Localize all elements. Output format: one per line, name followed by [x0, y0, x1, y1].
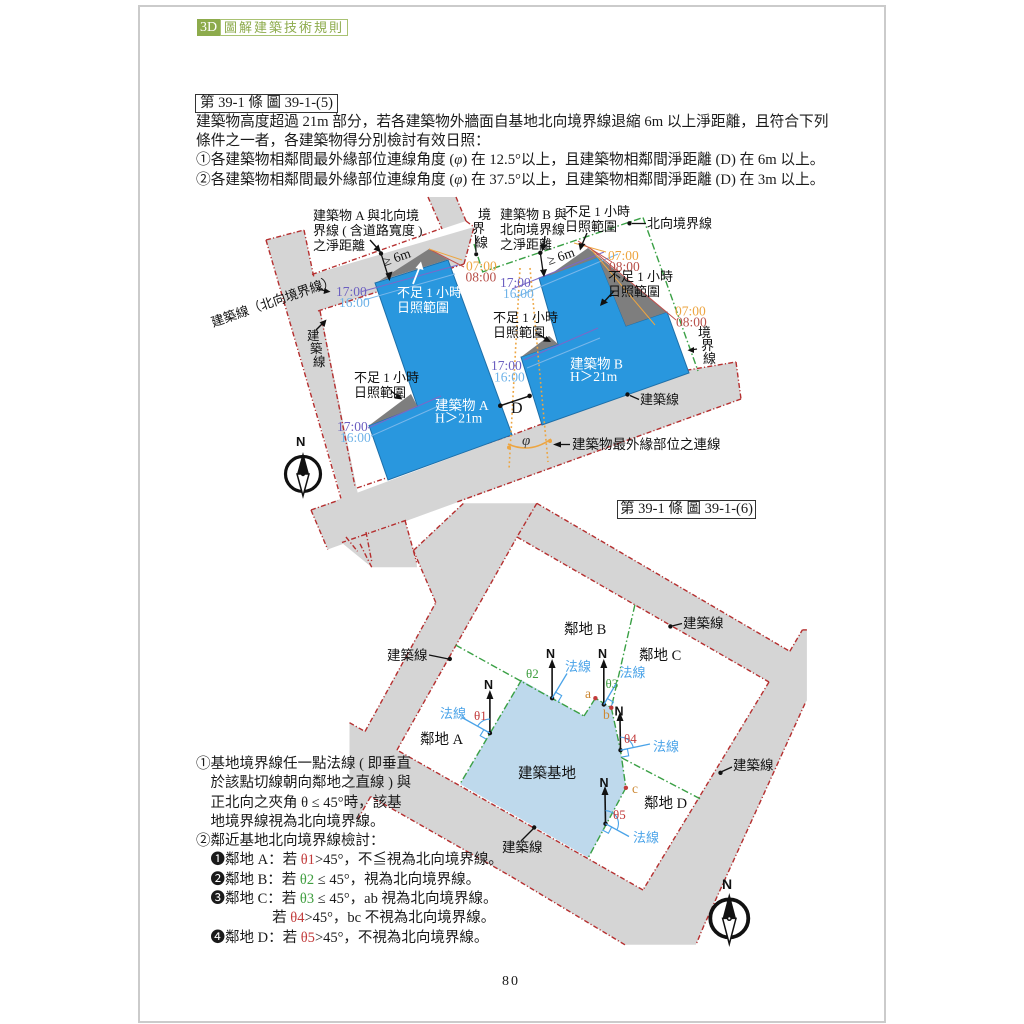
svg-text:θ2: θ2: [526, 666, 539, 681]
svg-text:θ4: θ4: [624, 731, 637, 746]
svg-text:不足 1 小時: 不足 1 小時: [354, 370, 419, 385]
svg-text:線: 線: [475, 235, 488, 250]
svg-text:建築線: 建築線: [387, 648, 428, 663]
svg-text:法線: 法線: [633, 830, 659, 845]
svg-text:N: N: [722, 876, 732, 892]
svg-text:鄰地 A: 鄰地 A: [420, 731, 464, 748]
svg-text:之淨距離: 之淨距離: [313, 238, 365, 253]
svg-text:界線 ( 含道路寬度 ): 界線 ( 含道路寬度 ): [313, 223, 422, 238]
svg-text:日照範圍: 日照範圍: [608, 284, 660, 299]
svg-text:16:00: 16:00: [340, 430, 371, 445]
svg-text:H＞21m: H＞21m: [570, 369, 618, 384]
svg-text:北向境界線: 北向境界線: [647, 216, 712, 231]
svg-text:鄰地 C: 鄰地 C: [639, 647, 681, 664]
svg-text:建: 建: [307, 329, 320, 343]
svg-text:c: c: [632, 781, 638, 796]
svg-text:16:00: 16:00: [503, 286, 534, 301]
svg-text:日照範圍: 日照範圍: [493, 325, 545, 340]
svg-text:法線: 法線: [440, 706, 466, 721]
svg-text:N: N: [615, 705, 624, 719]
svg-text:N: N: [296, 434, 305, 449]
svg-text:θ3: θ3: [606, 676, 619, 691]
svg-text:界: 界: [472, 221, 485, 236]
svg-text:16:00: 16:00: [339, 295, 370, 310]
svg-text:b: b: [603, 707, 610, 722]
svg-text:日照範圍: 日照範圍: [565, 219, 617, 234]
svg-text:H＞21m: H＞21m: [435, 411, 483, 426]
svg-text:建築線: 建築線: [683, 616, 724, 631]
svg-text:N: N: [546, 647, 555, 661]
svg-text:建築基地: 建築基地: [518, 764, 576, 782]
svg-text:θ1: θ1: [474, 708, 487, 723]
svg-text:建築物 A 與北向境: 建築物 A 與北向境: [313, 208, 419, 223]
svg-text:法線: 法線: [565, 659, 591, 674]
svg-text:a: a: [585, 686, 591, 701]
svg-text:線: 線: [703, 351, 716, 366]
svg-text:N: N: [598, 647, 607, 661]
svg-text:法線: 法線: [620, 665, 646, 680]
svg-text:不足 1 小時: 不足 1 小時: [493, 310, 558, 325]
svg-text:北向境界線: 北向境界線: [500, 222, 565, 237]
svg-text:16:00: 16:00: [494, 370, 525, 385]
svg-text:境: 境: [478, 207, 491, 222]
svg-text:建築線: 建築線: [502, 840, 543, 855]
svg-text:08:00: 08:00: [466, 270, 497, 285]
svg-text:建築線: 建築線: [733, 758, 774, 773]
svg-text:N: N: [484, 678, 493, 692]
svg-text:建築線: 建築線: [640, 392, 679, 407]
svg-text:築: 築: [310, 341, 323, 356]
svg-text:鄰地 B: 鄰地 B: [564, 621, 606, 638]
svg-text:法線: 法線: [653, 739, 679, 754]
svg-text:不足 1 小時: 不足 1 小時: [397, 285, 462, 300]
svg-text:線: 線: [313, 354, 326, 369]
svg-text:鄰地 D: 鄰地 D: [644, 795, 687, 812]
svg-text:D: D: [511, 400, 523, 417]
svg-text:φ: φ: [522, 433, 530, 449]
svg-text:N: N: [600, 776, 609, 790]
svg-text:不足 1 小時: 不足 1 小時: [565, 204, 630, 219]
svg-text:建築物 B 與: 建築物 B 與: [500, 207, 567, 222]
svg-text:不足 1 小時: 不足 1 小時: [608, 269, 673, 284]
svg-text:θ5: θ5: [613, 807, 626, 822]
svg-text:建築物最外緣部位之連線: 建築物最外緣部位之連線: [572, 437, 721, 452]
svg-text:日照範圍: 日照範圍: [397, 300, 449, 315]
